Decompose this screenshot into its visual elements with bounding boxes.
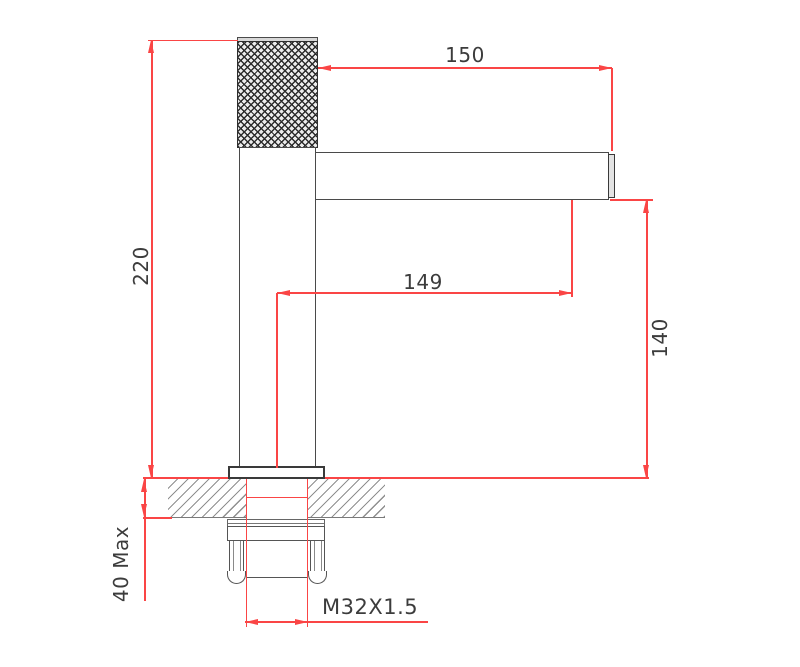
arrowhead-40max-bottom (141, 504, 147, 517)
dim-line-40max (144, 479, 146, 601)
arrowhead-140-bottom (643, 465, 649, 478)
shank-left-edge (246, 479, 248, 627)
mounting-stud-left (229, 541, 244, 575)
dim-label-thread: M32X1.5 (322, 596, 442, 618)
arrowhead-149-left (277, 290, 290, 296)
ext-line-149-left (276, 293, 278, 468)
dim-label-140: 140 (649, 311, 671, 365)
ext-line-deck-bottom (143, 517, 172, 519)
arrowhead-thread-left (245, 619, 258, 625)
deck-hatch-right (308, 479, 385, 518)
arrowhead-220-top (148, 40, 154, 53)
arrowhead-140-top (643, 200, 649, 213)
shank-right-edge (307, 479, 309, 627)
mounting-stud-right (310, 541, 325, 575)
spout (315, 152, 609, 200)
dim-label-149: 149 (388, 271, 458, 293)
ext-line-handle-top (148, 40, 238, 42)
knurled-handle (237, 41, 318, 148)
shank-joint-line (246, 497, 307, 499)
spout-end-cap (608, 154, 615, 198)
arrowhead-thread-right (295, 619, 308, 625)
dim-label-40max: 40 Max (110, 524, 132, 604)
ext-line-150-right (611, 68, 613, 151)
arrowhead-40max-top (141, 479, 147, 492)
arrowhead-150-left (318, 65, 331, 71)
shank-bottom-edge (246, 577, 307, 578)
ext-line-149-right (571, 200, 573, 297)
dim-label-220: 220 (130, 239, 152, 293)
deck-hatch-left (168, 479, 246, 518)
stud-cap-right (308, 571, 327, 584)
dim-line-thread (245, 621, 428, 623)
technical-drawing-canvas: 220 150 149 140 40 Max M32X1.5 (0, 0, 800, 667)
arrowhead-220-bottom (148, 465, 154, 478)
ext-line-deck-top-left (143, 477, 228, 479)
dim-label-150: 150 (430, 44, 500, 66)
ext-line-deck-top-right (325, 477, 649, 479)
stud-cap-left (227, 571, 246, 584)
dim-line-150 (318, 67, 612, 69)
mounting-nut (227, 526, 325, 541)
